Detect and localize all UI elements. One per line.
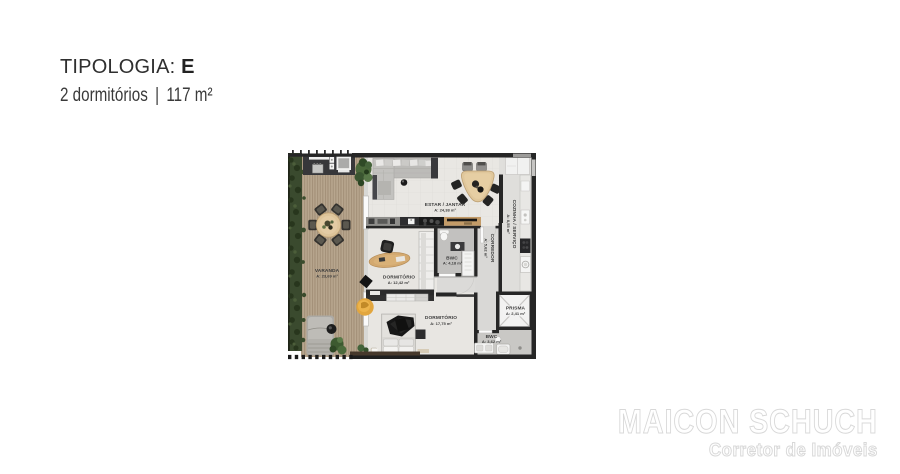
svg-text:A: 24,38 m²: A: 24,38 m² [434,208,456,213]
svg-text:A: 2,41 m²: A: 2,41 m² [506,311,526,316]
svg-text:A: 12,42 m²: A: 12,42 m² [388,280,410,285]
svg-text:A: 5,62 m²: A: 5,62 m² [484,238,489,258]
svg-text:CORREDOR: CORREDOR [489,234,495,263]
svg-text:A: 23,69 m²: A: 23,69 m² [316,274,338,279]
svg-text:A: 8,55 m²: A: 8,55 m² [506,214,511,234]
svg-text:A: 4,18 m²: A: 4,18 m² [443,260,463,265]
svg-text:A: 3,62 m²: A: 3,62 m² [482,339,502,344]
svg-text:A: 17,75 m²: A: 17,75 m² [430,321,452,326]
